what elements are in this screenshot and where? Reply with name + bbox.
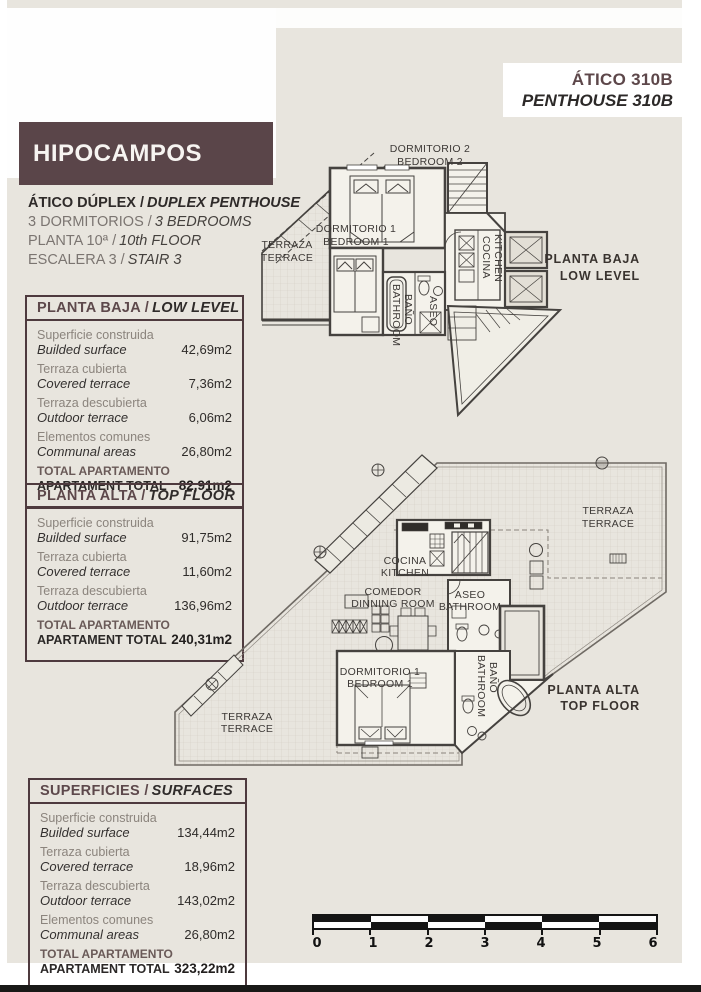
scale-bar-ticks (312, 930, 658, 935)
top-band (276, 8, 682, 28)
table-row: Superficie construida Builded surface134… (40, 811, 235, 840)
stairs-icon (448, 163, 487, 213)
detail-stair: ESCALERA 3 /STAIR 3 (28, 251, 278, 270)
bedroom1-label-es: DORMITORIO 1 (340, 666, 420, 678)
elevator-icon (505, 232, 547, 307)
table-low-header: PLANTA BAJA /LOW LEVEL (27, 297, 242, 321)
bath-label-en: BATHROOM (390, 284, 402, 346)
bath-label-es: BAÑO (487, 662, 500, 693)
table-row: Terraza descubierta Outdoor terrace6,06m… (37, 396, 232, 425)
terrace-right-label-en: TERRACE (582, 518, 634, 530)
kitchen-label-en: KITCHEN (381, 567, 429, 579)
kitchen-label-es: COCINA (480, 236, 492, 279)
scale-bar-numbers: 0 1 2 3 4 5 6 (312, 936, 658, 951)
aseo-label-en: BATHROOM (439, 601, 501, 613)
unit-details: ÁTICO DÚPLEX /DUPLEX PENTHOUSE 3 DORMITO… (28, 194, 278, 270)
bath-label-es: BAÑO (402, 294, 415, 325)
bedroom1-label-es: DORMITORIO 1 (316, 223, 396, 235)
bedroom1-label-en: BEDROOM 1 (347, 678, 413, 690)
bedroom1-room-low (330, 248, 383, 335)
bath-label-en: BATHROOM (475, 655, 487, 717)
floorplan-top-floor: TERRAZA TERRACE COCINA KITCHEN COMEDOR D… (162, 448, 687, 783)
floorplan-low-level: DORMITORIO 2 BEDROOM 2 TERRAZA TERRACE D… (252, 136, 652, 448)
detail-type: ÁTICO DÚPLEX /DUPLEX PENTHOUSE (28, 194, 278, 213)
terrace-left-label-en: TERRACE (221, 723, 273, 735)
bedroom2-label-es: DORMITORIO 2 (390, 143, 470, 155)
scale-bar-segments (312, 914, 658, 930)
unit-number-en: PENTHOUSE 310B (522, 90, 673, 112)
dining-label-es: COMEDOR (365, 586, 422, 598)
project-title: HIPOCAMPOS (33, 140, 202, 168)
stairwell-triangle (448, 306, 560, 415)
unit-number-es: ÁTICO 310B (572, 69, 673, 90)
terrace-left-label-es: TERRAZA (221, 711, 272, 723)
kitchen-label-es: COCINA (384, 555, 427, 567)
floor-tag-top-en: TOP FLOOR (560, 699, 640, 713)
bottom-rule (0, 985, 701, 992)
unit-title-box: ÁTICO 310B PENTHOUSE 310B (503, 63, 682, 117)
table-row: Elementos comunes Communal areas26,80m2 (40, 913, 235, 942)
table-total-row: TOTAL APARTAMENTO APARTAMENT TOTAL323,22… (40, 947, 235, 977)
terrace-label-es: TERRAZA (261, 239, 312, 251)
dining-label-en: DINNING ROOM (351, 598, 435, 610)
scale-bar: 0 1 2 3 4 5 6 (312, 914, 658, 951)
bedroom1-label-en: BEDROOM 1 (323, 236, 389, 248)
table-surfaces-header: SUPERFICIES /SURFACES (30, 780, 245, 804)
table-surfaces: SUPERFICIES /SURFACES Superficie constru… (28, 778, 247, 991)
terrace-right-label-es: TERRAZA (582, 505, 633, 517)
floor-tag-low-es: PLANTA BAJA (544, 252, 640, 266)
kitchen-label-en: KITCHEN (492, 234, 504, 282)
table-row: Superficie construida Builded surface42,… (37, 328, 232, 357)
detail-floor: PLANTA 10ª /10th FLOOR (28, 232, 278, 251)
terrace-label-en: TERRACE (261, 252, 313, 264)
aseo-label: ASEO (427, 296, 439, 326)
bedroom2-label-en: BEDROOM 2 (397, 156, 463, 168)
detail-bedrooms: 3 DORMITORIOS /3 BEDROOMS (28, 213, 278, 232)
aseo-label-es: ASEO (455, 589, 485, 601)
table-row: Terraza cubierta Covered terrace18,96m2 (40, 845, 235, 874)
floor-tag-top-es: PLANTA ALTA (547, 683, 640, 697)
table-row: Terraza cubierta Covered terrace7,36m2 (37, 362, 232, 391)
table-row: Terraza descubierta Outdoor terrace143,0… (40, 879, 235, 908)
project-banner: HIPOCAMPOS (19, 122, 273, 185)
floor-tag-low-en: LOW LEVEL (560, 269, 640, 283)
